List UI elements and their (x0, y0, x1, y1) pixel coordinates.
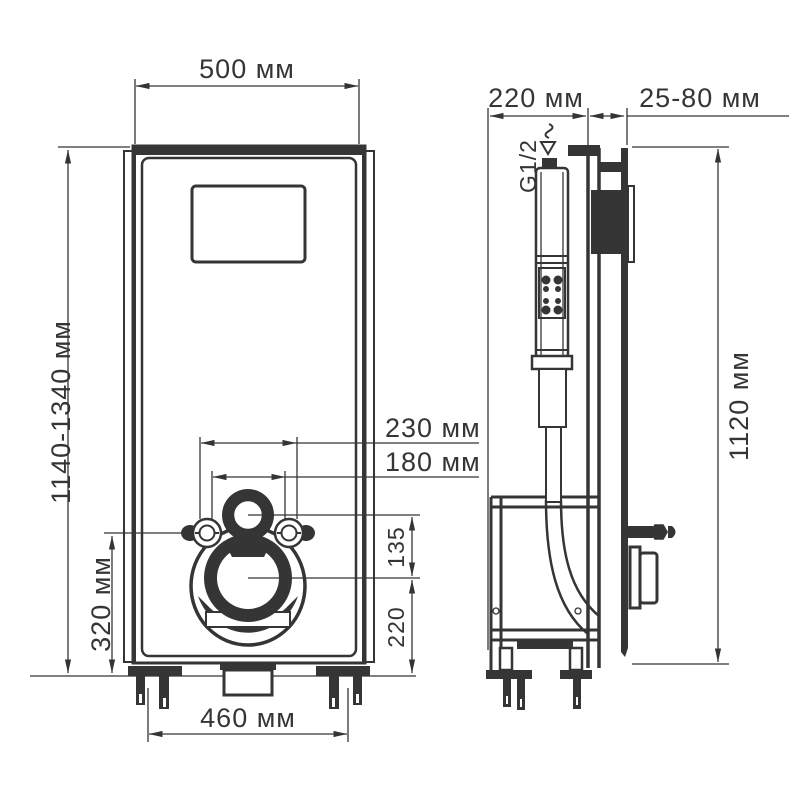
flush-button-plate (192, 186, 305, 262)
wall-rail (621, 148, 628, 657)
flush-pipe (546, 427, 561, 502)
panel-top-band (133, 146, 365, 155)
bracket-hole (493, 608, 499, 614)
dim-frame-height-label: 1120 мм (724, 351, 754, 461)
foot-right (316, 666, 370, 709)
tank-flange (532, 356, 572, 369)
dim-width-label: 500 мм (199, 54, 295, 84)
outlet-assembly (191, 489, 305, 645)
fixing-stud-right (275, 519, 315, 547)
inlet-valve-cap (542, 158, 557, 169)
installation-frame-diagram: 500 мм 1140-1340 мм 320 мм 230 мм 180 мм… (0, 0, 800, 800)
top-wall-bracket (598, 162, 622, 172)
side-view: G1/2 (486, 108, 676, 710)
frame-top-cap (568, 145, 600, 156)
drain-base (517, 641, 573, 649)
dim-base-width-label: 460 мм (200, 703, 296, 733)
cistern-tank (532, 158, 572, 502)
dim-depth-label: 220 мм (488, 83, 584, 113)
side-waste-flange (630, 547, 657, 608)
dim-stud-narrow-label: 180 мм (385, 447, 481, 477)
wall-bracket-plate (628, 186, 634, 262)
side-fixing-stud (621, 524, 676, 540)
dim-inlet-outlet-label: 135 (383, 526, 409, 567)
foot-left (128, 666, 182, 709)
drain-elbow (546, 500, 588, 634)
drain-elbow (561, 500, 599, 616)
dim-height-label: 1140-1340 мм (46, 320, 76, 504)
bracket-hole (575, 608, 581, 614)
side-feet (486, 648, 592, 710)
dim-stud-wide-label: 230 мм (385, 413, 481, 443)
dim-wall-distance-label: 25-80 мм (639, 83, 761, 113)
flush-valve (539, 369, 566, 427)
outlet-bracket (224, 541, 272, 557)
technical-drawing: 500 мм 1140-1340 мм 320 мм 230 мм 180 мм… (0, 0, 800, 800)
water-inlet-arrow-icon (541, 124, 555, 154)
wall-bracket-block (591, 190, 621, 254)
dim-stud-height-label: 320 мм (86, 556, 116, 652)
dim-outlet-height-label: 220 (383, 606, 409, 647)
water-connection-label: G1/2 (515, 139, 541, 193)
waste-outlet-box (220, 663, 276, 695)
